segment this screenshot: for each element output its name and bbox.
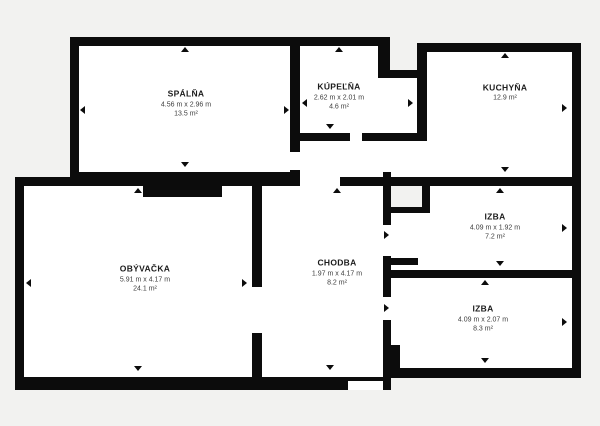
- room-label-izba-horna: IZBA 4.09 m x 1.92 m 7.2 m²: [470, 212, 520, 241]
- room-dimensions: 4.09 m x 2.07 m: [458, 317, 508, 324]
- wall-arrow-icon: [242, 279, 247, 287]
- room-kuchyna: [427, 52, 572, 177]
- door-arrow-icon: [384, 304, 389, 312]
- wall-arrow-icon: [326, 124, 334, 129]
- room-name: SPÁLŇA: [161, 89, 211, 99]
- wall-arrow-icon: [80, 106, 85, 114]
- wall-separator-left: [15, 177, 300, 186]
- doorway-entrance: [348, 381, 383, 390]
- wall-arrow-icon: [302, 99, 307, 107]
- room-area: 8.3 m²: [458, 326, 508, 333]
- wall-arrow-icon: [481, 280, 489, 285]
- room-area: 13.5 m²: [161, 111, 211, 118]
- room-name: KUCHYŇA: [483, 83, 528, 93]
- wall-outer-left-up: [70, 37, 79, 186]
- hall-passage: [300, 141, 430, 177]
- room-label-kupelna: KÚPEĽŇA 2.62 m x 2.01 m 4.6 m²: [314, 82, 364, 111]
- door-jamb: [290, 170, 300, 172]
- wall-notch-vert: [378, 37, 390, 78]
- door-jamb: [252, 285, 262, 287]
- room-name: IZBA: [470, 212, 520, 222]
- room-dimensions: 4.09 m x 1.92 m: [470, 225, 520, 232]
- room-name: CHODBA: [312, 258, 362, 268]
- wall-arrow-icon: [481, 358, 489, 363]
- doorway-obyvacka: [252, 285, 262, 335]
- door-jamb: [383, 320, 391, 322]
- room-label-obyvacka: OBÝVAČKA 5.91 m x 4.17 m 24.1 m²: [120, 264, 170, 293]
- wall-outer-left-low: [15, 177, 24, 390]
- wall-arrow-icon: [496, 261, 504, 266]
- wall-separator-right: [340, 177, 581, 186]
- door-jamb: [252, 333, 262, 335]
- wall-arrow-icon: [335, 47, 343, 52]
- room-dimensions: 4.56 m x 2.96 m: [161, 102, 211, 109]
- wall-obyvacka-chodba: [252, 186, 262, 377]
- room-name: KÚPEĽŇA: [314, 82, 364, 92]
- room-dimensions: 5.91 m x 4.17 m: [120, 277, 170, 284]
- doorway-chodba-top: [300, 177, 340, 186]
- wall-arrow-icon: [326, 365, 334, 370]
- wall-arrow-icon: [134, 366, 142, 371]
- wall-arrow-icon: [501, 167, 509, 172]
- wall-arrow-icon: [181, 162, 189, 167]
- wall-stub: [383, 258, 418, 265]
- wall-arrow-icon: [181, 47, 189, 52]
- wall-arrow-icon: [26, 279, 31, 287]
- room-label-izba-dolna: IZBA 4.09 m x 2.07 m 8.3 m²: [458, 304, 508, 333]
- door-jamb: [290, 150, 300, 152]
- room-label-spalna: SPÁLŇA 4.56 m x 2.96 m 13.5 m²: [161, 89, 211, 118]
- wall-izba-divider: [383, 270, 581, 278]
- door-jamb: [348, 133, 350, 141]
- wall-chodba-right: [383, 172, 391, 390]
- wall-arrow-icon: [134, 188, 142, 193]
- room-area: 24.1 m²: [120, 286, 170, 293]
- wall-arrow-icon: [333, 188, 341, 193]
- room-area: 12.9 m²: [483, 95, 528, 102]
- floor-plan: SPÁLŇA 4.56 m x 2.96 m 13.5 m² KÚPEĽŇA 2…: [0, 0, 600, 426]
- wall-arrow-icon: [496, 188, 504, 193]
- room-area: 7.2 m²: [470, 234, 520, 241]
- room-label-kuchyna: KUCHYŇA 12.9 m²: [483, 83, 528, 102]
- door-jamb: [362, 133, 364, 141]
- door-jamb: [383, 256, 391, 258]
- doorway-spalna: [290, 150, 300, 172]
- room-name: OBÝVAČKA: [120, 264, 170, 274]
- room-label-chodba: CHODBA 1.97 m x 4.17 m 8.2 m²: [312, 258, 362, 287]
- wall-pillar: [143, 186, 222, 197]
- room-name: IZBA: [458, 304, 508, 314]
- wall-top-left: [70, 37, 390, 46]
- wall-kuchyna-top: [418, 43, 581, 52]
- doorway-izba-horna: [383, 223, 391, 258]
- wall-kuchyna-right: [572, 43, 581, 177]
- wall-arrow-icon: [501, 53, 509, 58]
- wall-arrow-icon: [408, 99, 413, 107]
- wall-bottom-left: [15, 377, 383, 390]
- wall-arrow-icon: [562, 224, 567, 232]
- room-area: 4.6 m²: [314, 104, 364, 111]
- door-jamb: [383, 223, 391, 225]
- wall-kuchyna-left: [417, 43, 427, 140]
- wall-pocket-bottom: [391, 207, 430, 213]
- wall-izba-bottom: [388, 368, 581, 378]
- wall-arrow-icon: [562, 318, 567, 326]
- wall-arrow-icon: [284, 106, 289, 114]
- wall-notch-bottom: [390, 70, 418, 78]
- room-area: 8.2 m²: [312, 280, 362, 287]
- wall-arrow-icon: [562, 104, 567, 112]
- room-dimensions: 2.62 m x 2.01 m: [314, 95, 364, 102]
- door-jamb: [383, 295, 391, 297]
- door-arrow-icon: [384, 231, 389, 239]
- room-dimensions: 1.97 m x 4.17 m: [312, 271, 362, 278]
